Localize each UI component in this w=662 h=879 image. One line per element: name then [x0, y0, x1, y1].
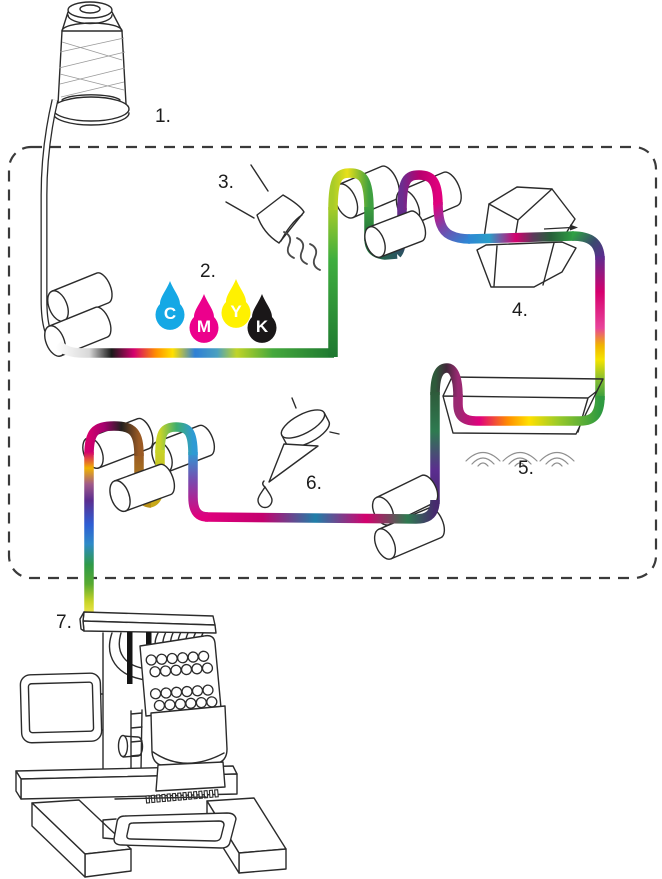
needle-block — [156, 762, 225, 791]
machine-post-1 — [127, 632, 133, 684]
ink-letter-y: Y — [230, 302, 242, 321]
ink-drop-cyan: C — [156, 281, 185, 330]
ink-letter-c: C — [164, 304, 176, 323]
spool-base — [53, 97, 129, 121]
step-label-1: 1. — [155, 106, 171, 127]
thread-segment-start — [58, 344, 334, 353]
step-label-5: 5. — [518, 458, 534, 479]
step-label-2: 2. — [200, 261, 216, 282]
step-label-3: 3. — [218, 172, 234, 193]
ink-letter-m: M — [197, 317, 211, 336]
step-label-4: 4. — [512, 300, 528, 321]
sprayer-nozzle-icon — [226, 165, 304, 243]
ink-drop-magenta: M — [190, 294, 219, 343]
embroidery-machine — [16, 612, 286, 877]
press-block-lower — [477, 242, 576, 287]
machine-guide-bar — [80, 612, 216, 633]
falling-drop — [258, 487, 272, 508]
process-diagram: 1. 2. C M Y K 3. — [0, 0, 662, 879]
step-label-7: 7. — [56, 612, 72, 633]
spool-hole — [80, 5, 100, 13]
press-block-upper — [484, 187, 575, 238]
ink-letter-k: K — [256, 317, 269, 336]
dropper-icon — [258, 398, 339, 508]
embroidery-hoop — [103, 813, 236, 848]
step-label-6: 6. — [306, 473, 322, 494]
machine-head-cover — [151, 706, 227, 766]
spray-waves — [284, 232, 320, 270]
machine-screen — [20, 673, 102, 743]
thread-spool — [53, 2, 129, 125]
ink-drop-black: K — [248, 294, 277, 343]
thread-segment — [468, 236, 574, 239]
ink-drop-yellow: Y — [222, 279, 251, 328]
thread-segment — [193, 452, 208, 517]
